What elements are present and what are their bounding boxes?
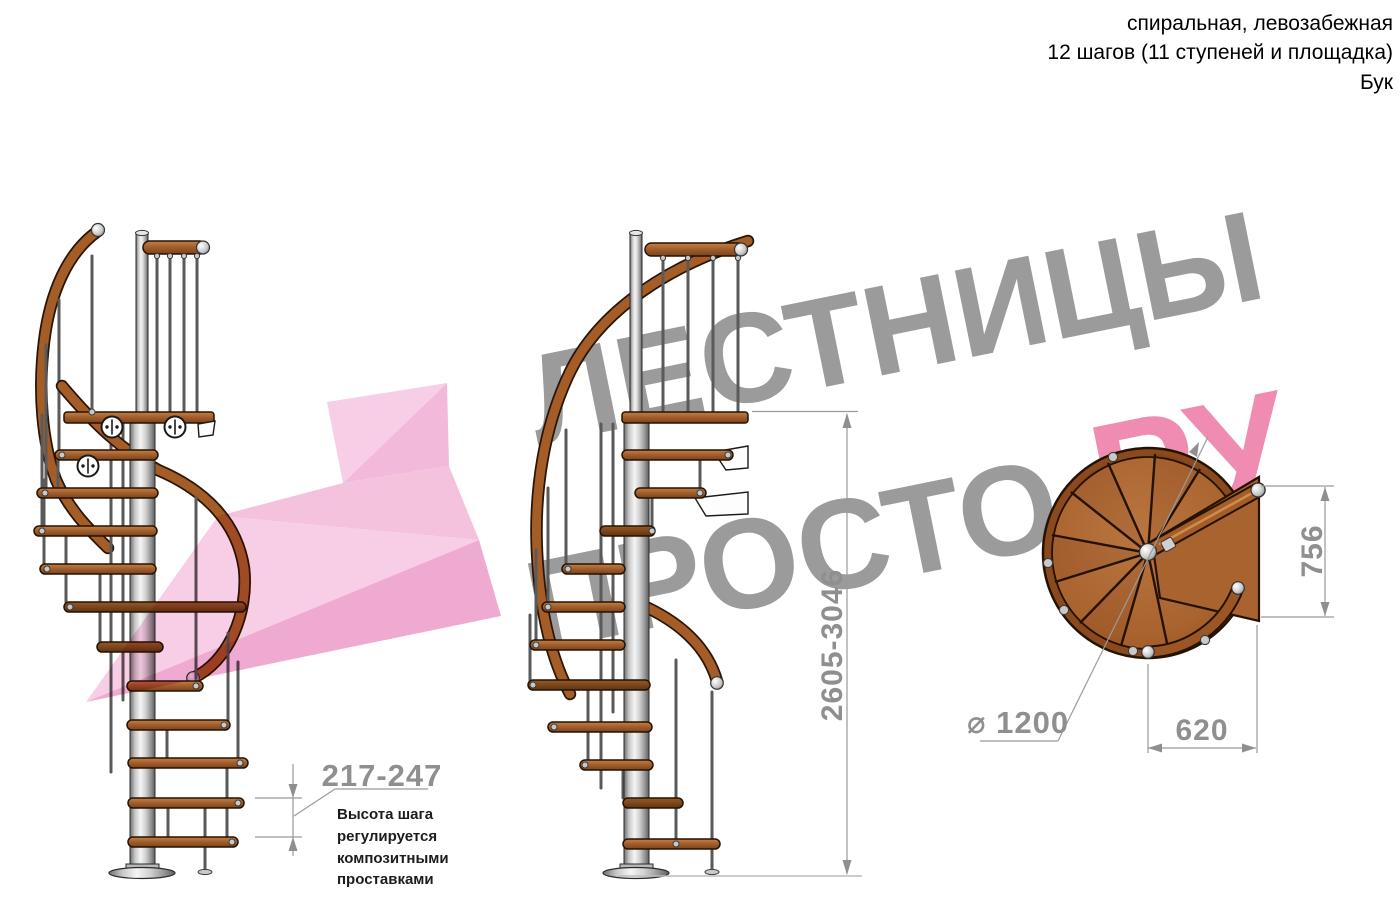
title-block: спиральная, левозабежная 12 шагов (11 ст… <box>1047 9 1393 97</box>
dimension-step-height: 217-247 <box>322 758 443 794</box>
view-top-plan <box>1043 448 1265 658</box>
dimension-diameter: ⌀ 1200 <box>967 705 1069 741</box>
staircase-drawing <box>0 0 1400 917</box>
dimension-total-height: 2605-3046 <box>816 569 850 721</box>
drawing-sheet: ЛЕСТНИЦЫ ПРОСТО.РУ <box>0 0 1400 917</box>
dimension-landing-width: 620 <box>1175 714 1228 748</box>
dimension-landing-depth: 756 <box>1296 524 1330 577</box>
view-side-elevation <box>528 230 748 878</box>
step-height-note: Высота шага регулируется композитными пр… <box>337 804 449 891</box>
